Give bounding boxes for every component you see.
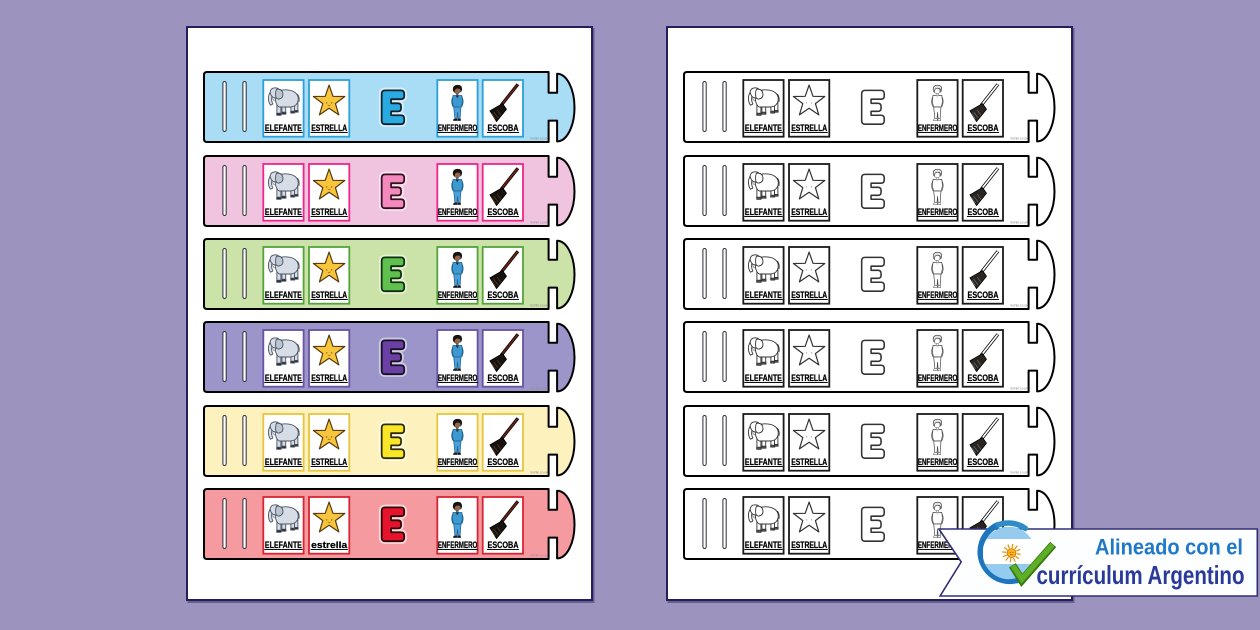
svg-text:ENFERMERO: ENFERMERO [918,206,958,217]
svg-text:ESCOBA: ESCOBA [488,289,519,300]
svg-text:ESTRELLA: ESTRELLA [791,289,827,300]
svg-text:twinkl.co.uk: twinkl.co.uk [1010,136,1028,140]
svg-text:twinkl.co.uk: twinkl.co.uk [530,220,548,224]
svg-text:ELEFANTE: ELEFANTE [745,539,782,550]
svg-text:ENFERMERO: ENFERMERO [438,206,478,217]
svg-text:twinkl.co.uk: twinkl.co.uk [530,553,548,557]
svg-text:ENFERMERO: ENFERMERO [438,372,478,383]
svg-text:ELEFANTE: ELEFANTE [745,289,782,300]
svg-text:ELEFANTE: ELEFANTE [745,206,782,217]
svg-text:ESTRELLA: ESTRELLA [311,372,347,383]
svg-text:twinkl.co.uk: twinkl.co.uk [1010,386,1028,390]
svg-text:ESCOBA: ESCOBA [488,372,519,383]
svg-text:ESCOBA: ESCOBA [968,372,999,383]
svg-text:twinkl.co.uk: twinkl.co.uk [1010,220,1028,224]
svg-text:ELEFANTE: ELEFANTE [265,372,302,383]
svg-text:currículum Argentino: currículum Argentino [1037,560,1245,590]
svg-text:ENFERMERO: ENFERMERO [918,289,958,300]
svg-text:ESTRELLA: ESTRELLA [791,456,827,467]
svg-text:ELEFANTE: ELEFANTE [265,289,302,300]
svg-text:ESCOBA: ESCOBA [968,206,999,217]
svg-text:ESTRELLA: ESTRELLA [791,206,827,217]
svg-text:ELEFANTE: ELEFANTE [265,122,302,133]
svg-text:ESTRELLA: ESTRELLA [311,122,347,133]
svg-text:ENFERMERO: ENFERMERO [438,289,478,300]
svg-text:ELEFANTE: ELEFANTE [745,372,782,383]
svg-text:ESTRELLA: ESTRELLA [791,372,827,383]
svg-text:twinkl.co.uk: twinkl.co.uk [1010,303,1028,307]
svg-text:twinkl.co.uk: twinkl.co.uk [530,470,548,474]
svg-text:ENFERMERO: ENFERMERO [918,456,958,467]
svg-text:ENFERMERO: ENFERMERO [918,122,958,133]
svg-text:ELEFANTE: ELEFANTE [745,456,782,467]
svg-text:ESTRELLA: ESTRELLA [311,206,347,217]
svg-text:ELEFANTE: ELEFANTE [265,456,302,467]
svg-text:ESCOBA: ESCOBA [488,456,519,467]
svg-text:ESCOBA: ESCOBA [488,539,519,550]
svg-text:twinkl.co.uk: twinkl.co.uk [530,386,548,390]
svg-text:twinkl.co.uk: twinkl.co.uk [1010,470,1028,474]
svg-text:twinkl.co.uk: twinkl.co.uk [530,303,548,307]
svg-text:ESCOBA: ESCOBA [968,289,999,300]
svg-text:ESTRELLA: ESTRELLA [791,122,827,133]
svg-text:ELEFANTE: ELEFANTE [265,206,302,217]
svg-text:ENFERMERO: ENFERMERO [438,456,478,467]
svg-text:ESTRELLA: ESTRELLA [791,539,827,550]
svg-text:estrella: estrella [311,539,348,550]
svg-text:ENFERMERO: ENFERMERO [918,372,958,383]
svg-text:ESCOBA: ESCOBA [488,206,519,217]
svg-text:ELEFANTE: ELEFANTE [265,539,302,550]
svg-text:ESCOBA: ESCOBA [968,456,999,467]
svg-text:ESCOBA: ESCOBA [968,122,999,133]
svg-text:ESCOBA: ESCOBA [488,122,519,133]
svg-text:ENFERMERO: ENFERMERO [438,539,478,550]
svg-text:ENFERMERO: ENFERMERO [438,122,478,133]
svg-text:ESTRELLA: ESTRELLA [311,289,347,300]
svg-text:twinkl.co.uk: twinkl.co.uk [530,136,548,140]
svg-text:ELEFANTE: ELEFANTE [745,122,782,133]
svg-text:ESTRELLA: ESTRELLA [311,456,347,467]
svg-text:Alineado con el: Alineado con el [1095,535,1243,560]
